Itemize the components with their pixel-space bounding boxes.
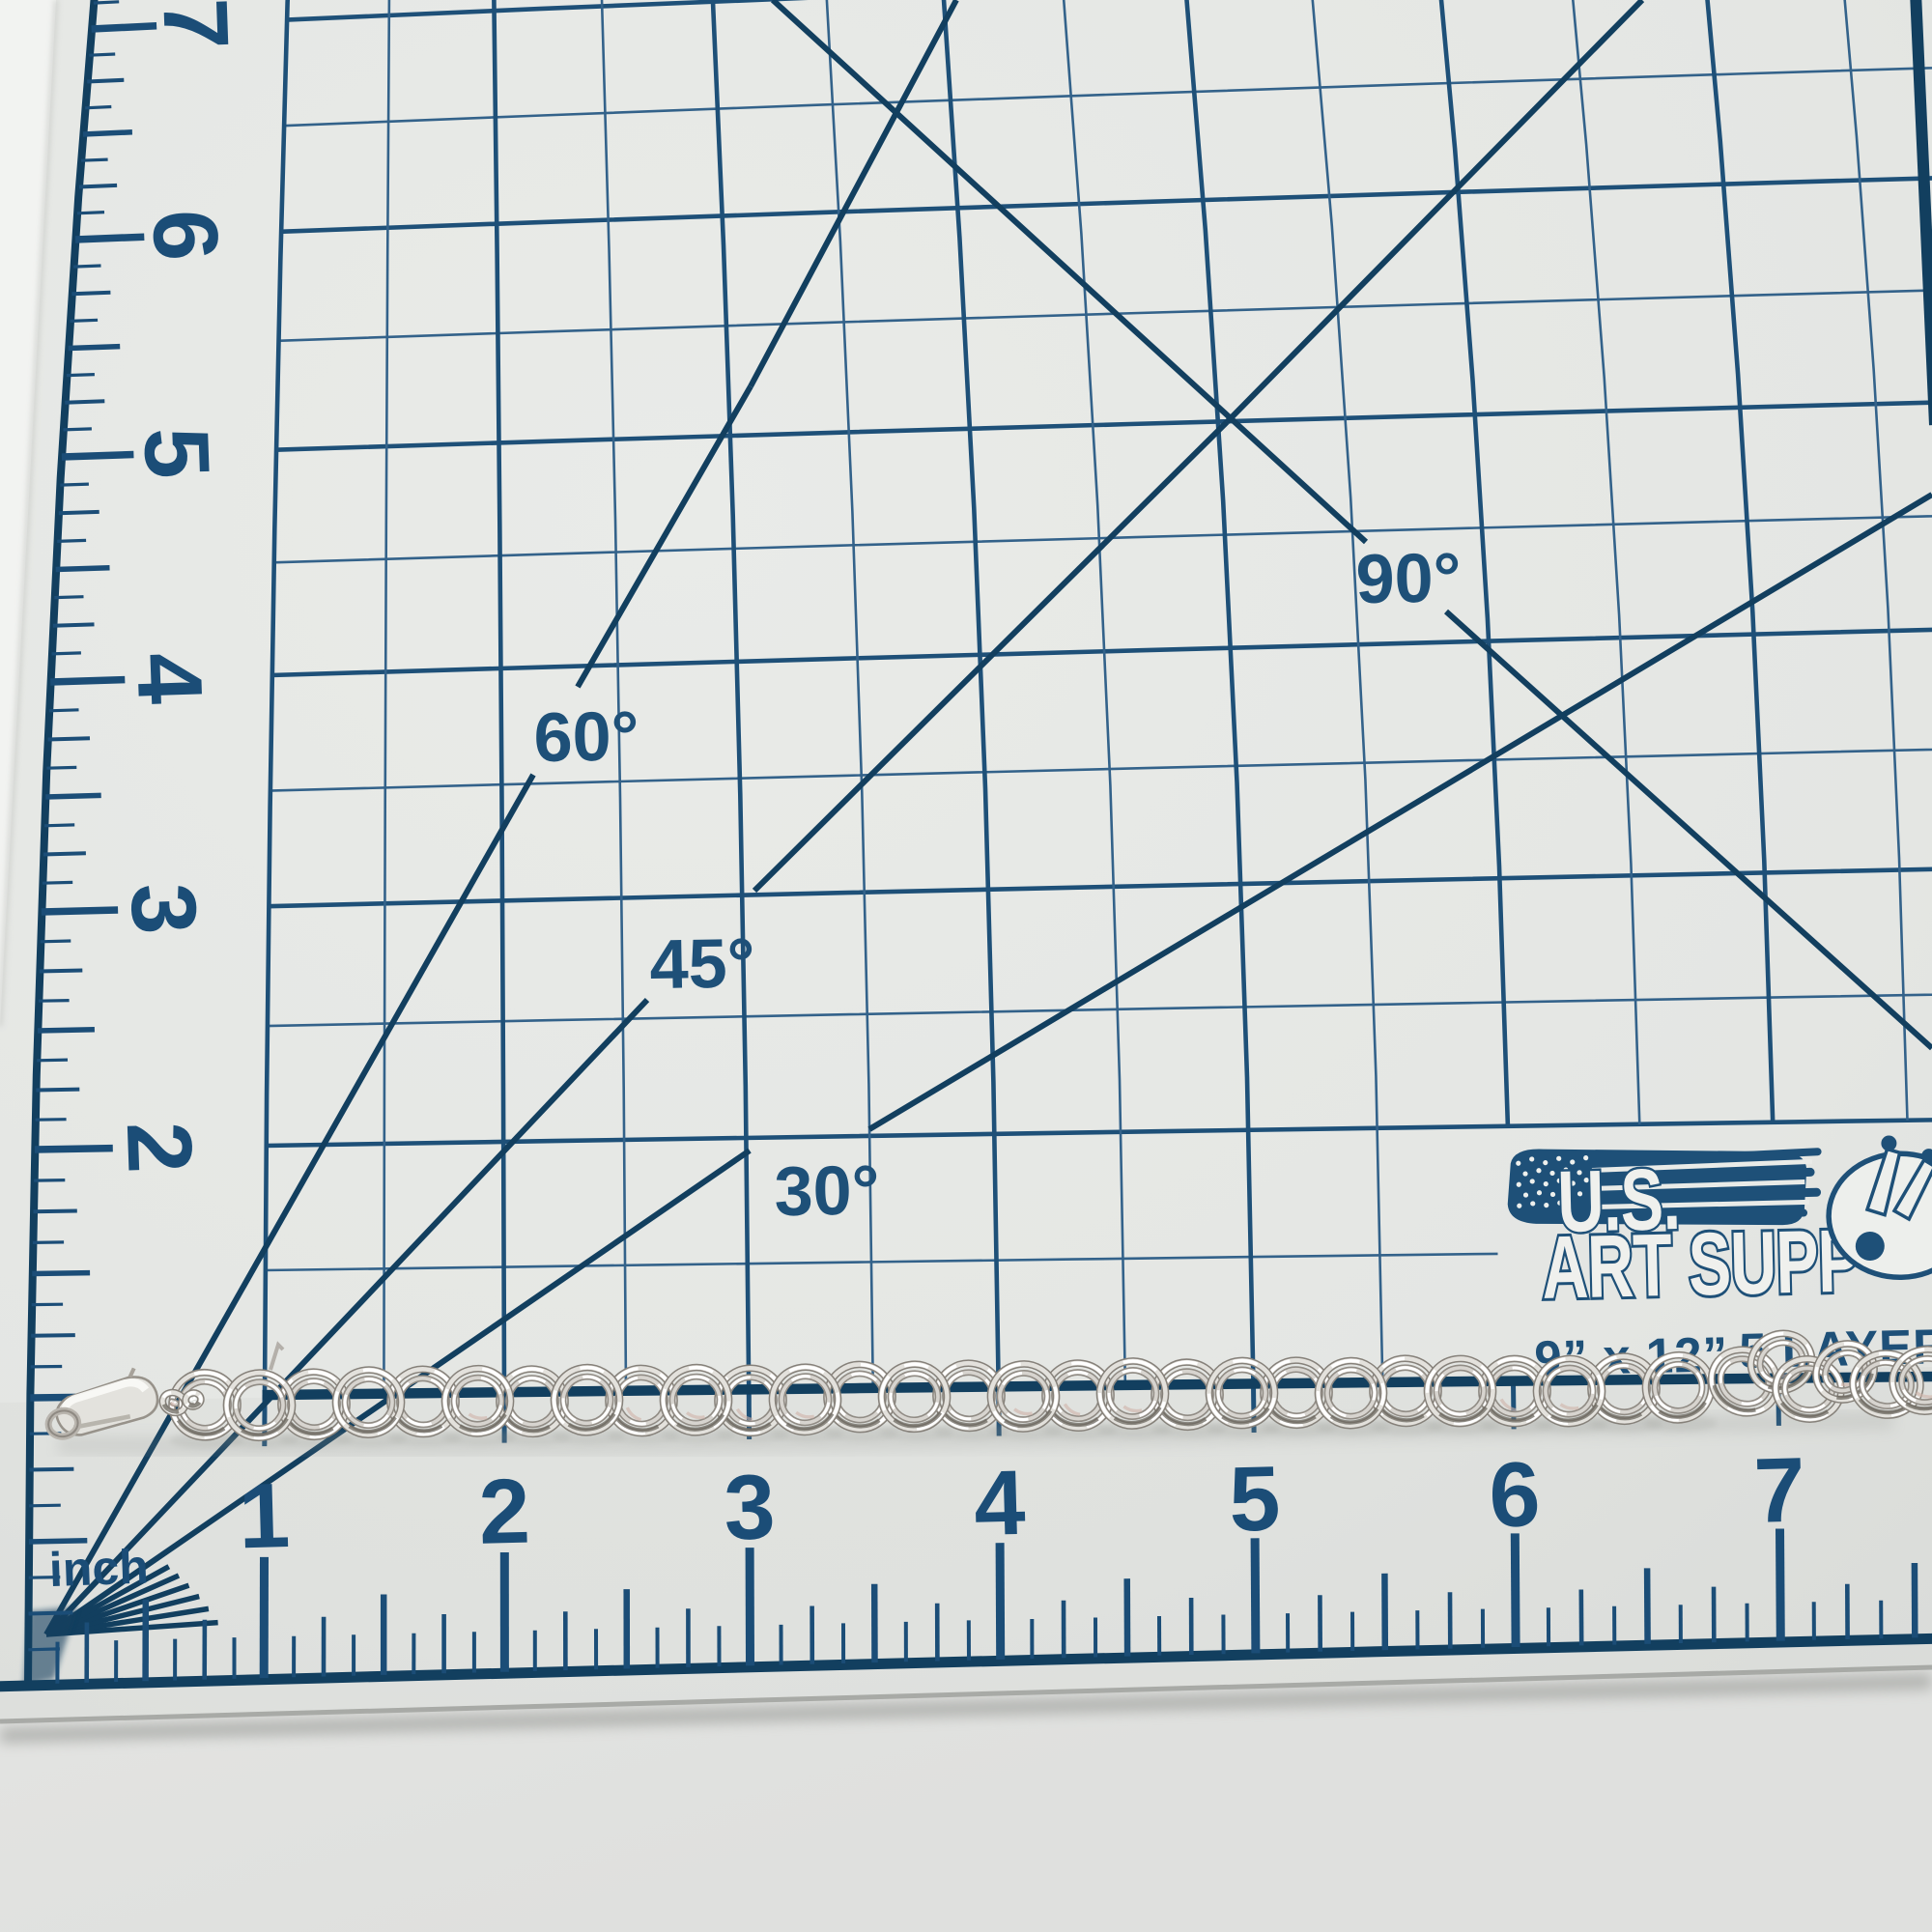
svg-text:4: 4: [117, 651, 221, 706]
svg-text:30°: 30°: [774, 1151, 880, 1231]
svg-text:7: 7: [143, 0, 247, 51]
svg-text:ART SUPP: ART SUPP: [1541, 1210, 1861, 1318]
svg-text:2: 2: [107, 1121, 212, 1176]
svg-text:45°: 45°: [649, 924, 755, 1004]
svg-text:5: 5: [1228, 1447, 1282, 1550]
svg-text:60°: 60°: [533, 697, 639, 777]
svg-text:3: 3: [111, 882, 215, 937]
svg-text:5: 5: [125, 426, 229, 481]
svg-text:4: 4: [973, 1452, 1027, 1555]
svg-text:7: 7: [1752, 1439, 1806, 1543]
svg-text:6: 6: [133, 208, 238, 263]
svg-text:6: 6: [1488, 1443, 1542, 1547]
svg-text:2: 2: [477, 1461, 531, 1564]
svg-text:inch: inch: [48, 1540, 150, 1598]
svg-text:90°: 90°: [1355, 539, 1462, 618]
svg-text:1: 1: [238, 1464, 292, 1568]
svg-text:3: 3: [723, 1456, 777, 1559]
